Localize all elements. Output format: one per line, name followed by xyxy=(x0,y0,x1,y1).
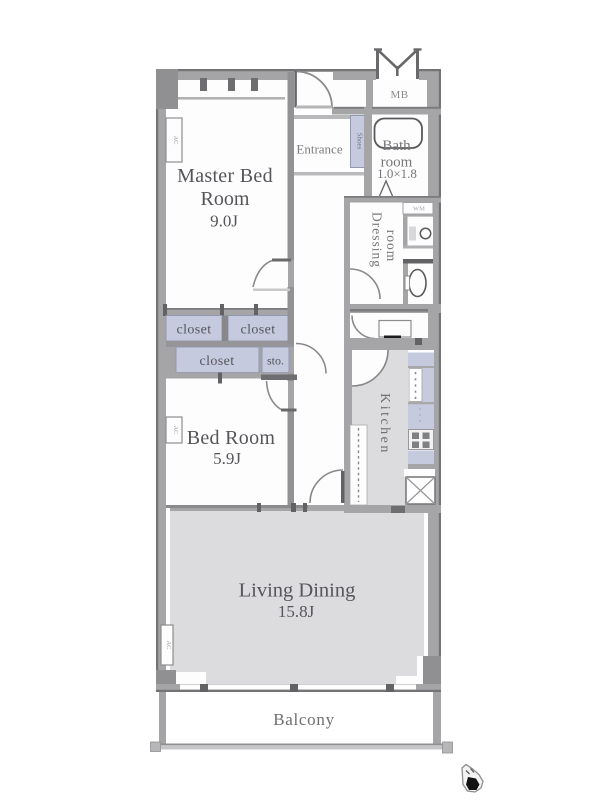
svg-text:Master Bed: Master Bed xyxy=(177,165,273,187)
svg-text:Living Dining: Living Dining xyxy=(239,580,356,602)
svg-text:15.8J: 15.8J xyxy=(278,602,315,621)
svg-text:room: room xyxy=(384,230,399,263)
svg-text:5.9J: 5.9J xyxy=(213,449,241,468)
svg-text:closet: closet xyxy=(199,354,234,369)
svg-text:AC: AC xyxy=(165,640,172,649)
svg-text:AC: AC xyxy=(172,425,179,434)
svg-text:Shoes: Shoes xyxy=(356,133,364,150)
svg-text:MB: MB xyxy=(390,89,408,101)
svg-text:closet: closet xyxy=(176,323,211,338)
svg-text:sto.: sto. xyxy=(267,354,284,368)
svg-text:Bed Room: Bed Room xyxy=(187,427,276,449)
svg-text:Balcony: Balcony xyxy=(273,710,335,729)
svg-text:Dressing: Dressing xyxy=(370,212,385,268)
svg-text:9.0J: 9.0J xyxy=(210,212,238,231)
svg-text:Kitchen: Kitchen xyxy=(377,393,392,455)
svg-text:Room: Room xyxy=(201,188,250,210)
svg-text:1.0×1.8: 1.0×1.8 xyxy=(377,166,417,181)
svg-text:AC: AC xyxy=(172,135,179,144)
svg-text:Entrance: Entrance xyxy=(296,142,342,157)
svg-text:WM: WM xyxy=(413,206,425,213)
svg-text:closet: closet xyxy=(240,323,275,338)
svg-text:Bath: Bath xyxy=(382,138,411,154)
